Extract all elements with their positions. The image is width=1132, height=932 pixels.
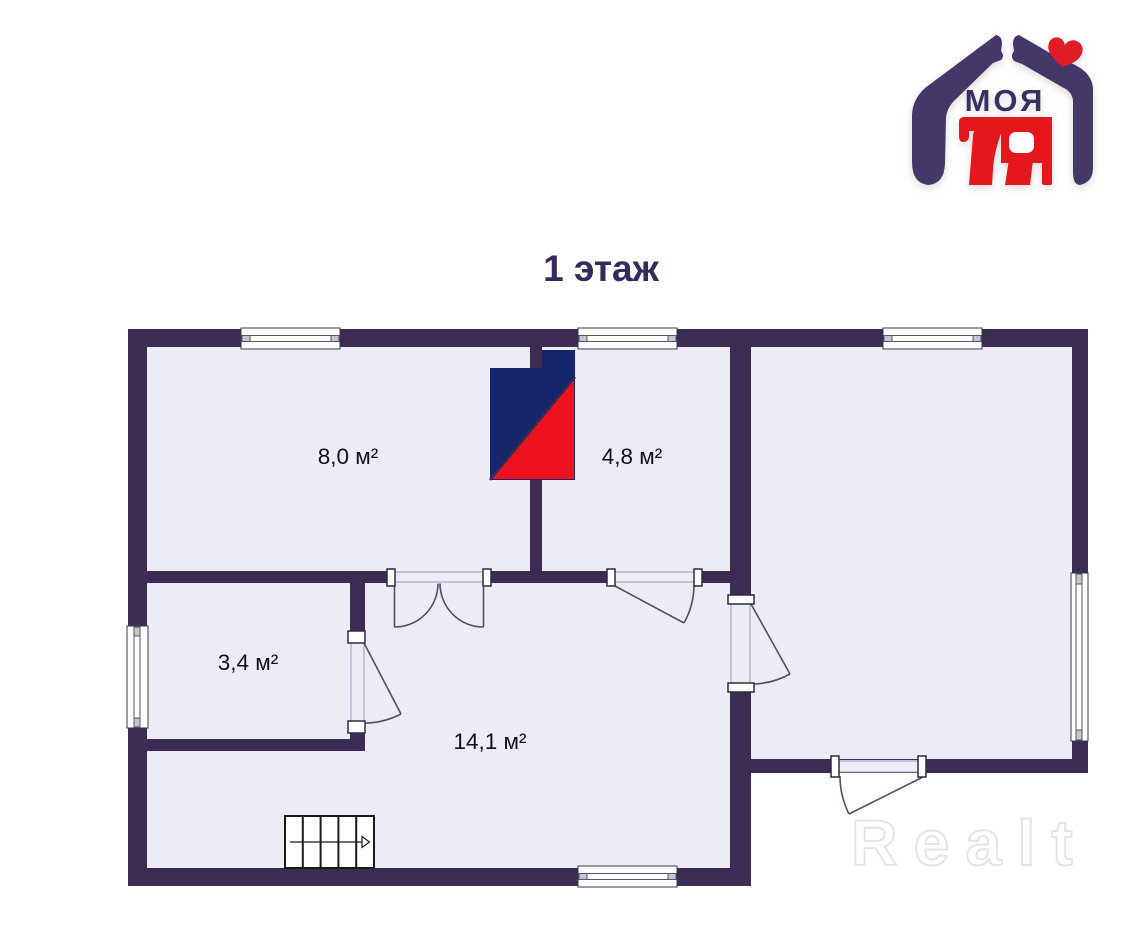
svg-text:4,8 м²: 4,8 м² [602,444,663,469]
svg-text:МОЯ: МОЯ [965,83,1046,118]
svg-text:1 этаж: 1 этаж [543,248,660,289]
svg-text:8,0 м²: 8,0 м² [318,444,379,469]
svg-text:3,4 м²: 3,4 м² [218,650,279,675]
svg-text:Realt: Realt [851,807,1089,879]
svg-text:14,1 м²: 14,1 м² [453,729,527,754]
